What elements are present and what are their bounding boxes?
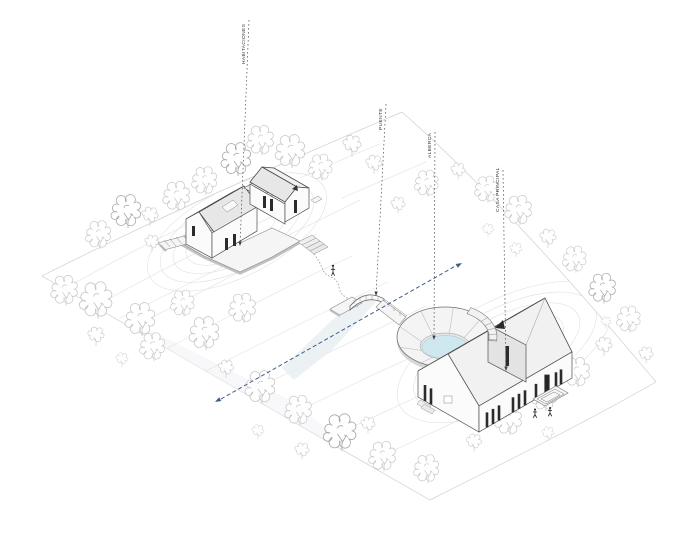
tree-icon (616, 306, 640, 333)
label-puente: PUENTE (378, 108, 384, 130)
tree-icon (116, 353, 128, 367)
tree-icon (192, 167, 217, 195)
tree-icon (562, 246, 586, 273)
tree-icon (252, 425, 264, 439)
tree-icon (295, 443, 309, 460)
tree-icon (221, 143, 251, 176)
label-habitaciones: HABITACIONES (241, 23, 247, 64)
tree-icon (88, 327, 104, 346)
tree-icon (111, 195, 141, 228)
tree-icon (540, 229, 556, 248)
label-alberca: ALBERCA (427, 132, 433, 158)
window (192, 226, 195, 236)
label-casa-principal: CASA PRINCIPAL (495, 167, 501, 212)
tree-icon (247, 125, 274, 155)
site-axonometric-diagram: HABITACIONES PUENTE ALBERCA CASA PRINCIP… (0, 0, 700, 534)
gable-window (444, 396, 452, 403)
tree-icon (639, 347, 653, 364)
tree-icon (589, 273, 616, 303)
diagram-canvas: HABITACIONES PUENTE ALBERCA CASA PRINCIP… (0, 0, 700, 534)
